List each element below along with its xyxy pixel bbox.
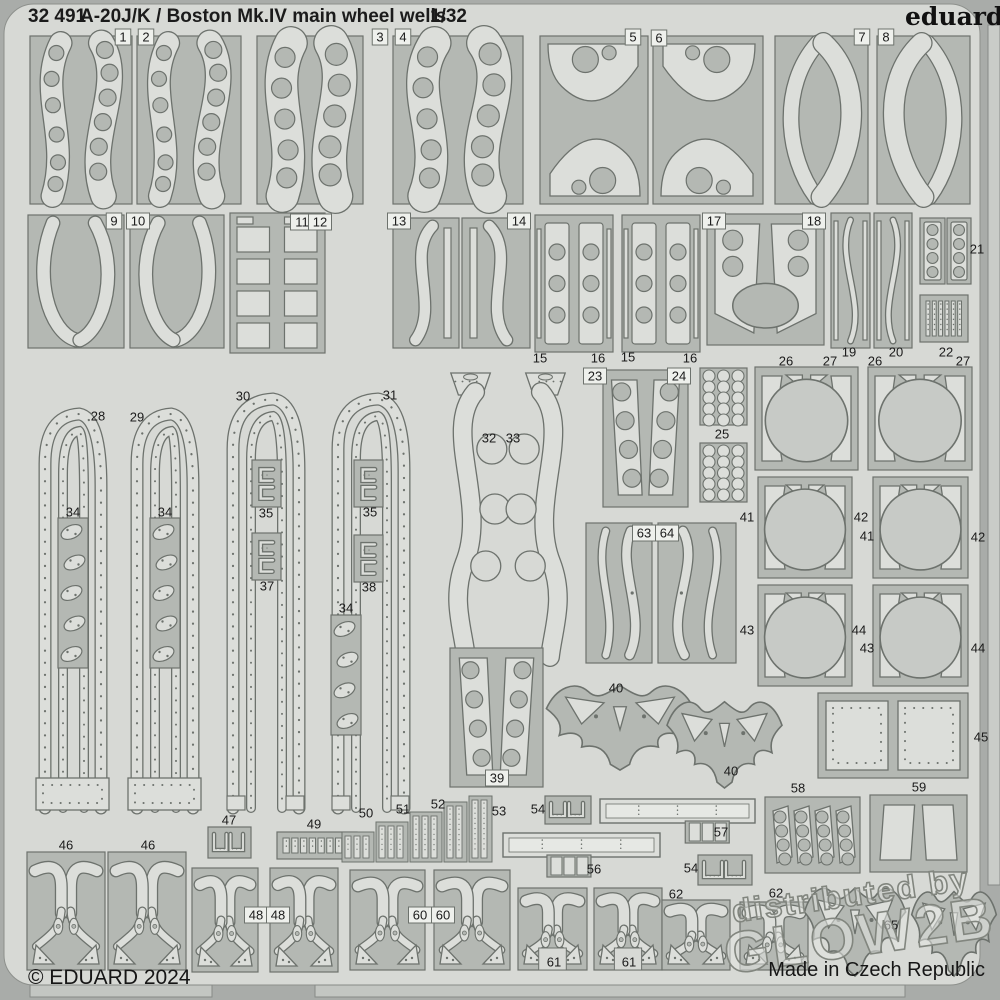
part-label: 47 [222,813,236,828]
svg-text:50: 50 [359,806,373,821]
part-label: 30 [236,389,250,404]
part-label: 16 [683,351,697,366]
part-label: 12 [309,214,332,230]
svg-text:1: 1 [119,30,126,45]
part-label: 45 [974,730,988,745]
part-label: 53 [492,804,506,819]
svg-text:40: 40 [609,681,623,696]
part-label: 61 [622,955,636,970]
panel-64 [658,523,736,663]
origin-text: Made in Czech Republic [768,959,985,981]
part-label: 16 [591,351,605,366]
panel-7 [775,36,868,204]
part-label: 42 [854,510,868,525]
part-label: 18 [803,213,826,229]
svg-text:3: 3 [376,30,383,45]
svg-text:34: 34 [158,505,172,520]
sheet-title: A-20J/K / Boston Mk.IV main wheel wells [80,6,446,27]
svg-text:30: 30 [236,389,250,404]
part-label: 4 [395,29,411,45]
svg-text:34: 34 [339,601,353,616]
part-label: 25 [715,427,729,442]
svg-text:45: 45 [974,730,988,745]
svg-text:27: 27 [956,354,970,369]
svg-text:22: 22 [939,345,953,360]
panel-15-16b [622,215,700,352]
svg-text:53: 53 [492,804,506,819]
part-label: 40 [609,681,623,696]
panel-2 [137,36,241,204]
svg-text:5: 5 [629,30,636,45]
part-label: 29 [130,410,144,425]
part-label: 42 [971,530,985,545]
adjacent-sheet-edge [988,25,1000,885]
part-label: 60 [432,907,455,923]
panel-58 [765,797,860,873]
part-label: 7 [854,29,870,45]
svg-text:17: 17 [707,214,721,229]
panel-46b [108,852,186,970]
svg-text:48: 48 [249,908,263,923]
panel-38 [354,535,383,582]
panel-41-42a [758,477,852,578]
eduard-logo: eduard [905,2,1000,31]
svg-text:13: 13 [392,214,406,229]
svg-text:4: 4 [399,30,406,45]
svg-text:52: 52 [431,797,445,812]
part-label: 54 [531,802,545,817]
part-label: 34 [158,505,172,520]
svg-text:48: 48 [271,908,285,923]
svg-text:61: 61 [547,955,561,970]
panel-13 [393,218,459,348]
part-label: 41 [860,529,874,544]
part-label: 35 [363,505,377,520]
panel-35b [354,460,383,507]
panel-39 [450,648,543,787]
svg-text:57: 57 [714,825,728,840]
part-label: 64 [656,525,679,541]
panel-15-16a [535,215,613,352]
svg-text:15: 15 [533,351,547,366]
part-label: 23 [584,368,607,384]
svg-text:44: 44 [971,641,985,656]
svg-text:7: 7 [858,30,865,45]
svg-text:62: 62 [669,887,683,902]
svg-text:59: 59 [912,780,926,795]
panel-19 [831,213,870,348]
svg-text:38: 38 [362,580,376,595]
svg-text:60: 60 [436,908,450,923]
part-label: 1 [115,29,131,45]
part-label: 60 [409,907,432,923]
svg-text:63: 63 [637,526,651,541]
svg-text:54: 54 [684,861,698,876]
svg-text:26: 26 [868,354,882,369]
part-label: 21 [970,242,984,257]
svg-text:29: 29 [130,410,144,425]
svg-text:16: 16 [683,351,697,366]
svg-text:14: 14 [512,214,526,229]
panel-9 [28,215,124,348]
svg-text:56: 56 [587,862,601,877]
svg-text:24: 24 [672,369,686,384]
part-label: 44 [971,641,985,656]
svg-text:19: 19 [842,345,856,360]
part-label: 38 [362,580,376,595]
panel-34c [331,615,361,735]
part-label: 59 [912,780,926,795]
panel-25a [700,368,747,426]
part-label: 34 [339,601,353,616]
panel-54b [698,855,752,885]
part-label: 10 [127,213,150,229]
panel-20 [874,213,912,348]
panel-3 [257,36,363,204]
part-label: 28 [91,409,105,424]
part-label: 9 [106,213,122,229]
fret-canvas: 1234567891011121314171821151615161920222… [0,0,1000,1000]
part-label: 62 [669,887,683,902]
svg-text:33: 33 [506,431,520,446]
part-label: 40 [724,764,738,779]
svg-text:41: 41 [860,529,874,544]
part-label: 19 [842,345,856,360]
part-label: 33 [506,431,520,446]
svg-text:47: 47 [222,813,236,828]
panel-23-24 [603,370,688,507]
svg-text:10: 10 [131,214,145,229]
svg-text:39: 39 [490,771,504,786]
part-label: 58 [791,781,805,796]
part-label: 27 [823,354,837,369]
panel-46a [27,852,105,970]
part-label: 20 [889,345,903,360]
svg-text:15: 15 [621,350,635,365]
part-label: 46 [59,838,73,853]
svg-text:51: 51 [396,802,410,817]
svg-text:26: 26 [779,354,793,369]
part-label: 2 [138,29,154,45]
panel-25b [700,443,747,502]
svg-text:43: 43 [740,623,754,638]
svg-text:42: 42 [854,510,868,525]
part-label: 26 [868,354,882,369]
part-label: 39 [486,770,509,786]
part-label: 26 [779,354,793,369]
part-label: 57 [714,825,728,840]
svg-text:35: 35 [259,506,273,521]
part-label: 48 [267,907,290,923]
part-label: 3 [372,29,388,45]
catalog-number: 32 491 [28,6,87,27]
svg-text:2: 2 [142,30,149,45]
svg-text:21: 21 [970,242,984,257]
part-label: 8 [878,29,894,45]
part-label: 32 [482,431,496,446]
svg-text:32: 32 [482,431,496,446]
part-label: 24 [668,368,691,384]
part-label: 63 [633,525,656,541]
part-label: 14 [508,213,531,229]
panel-22 [920,295,968,342]
svg-text:60: 60 [413,908,427,923]
part-label: 13 [388,213,411,229]
panel-43-44b [873,585,968,686]
svg-text:43: 43 [860,641,874,656]
part-label: 43 [740,623,754,638]
panel-59 [870,795,967,872]
svg-text:34: 34 [66,505,80,520]
panel-1 [30,36,132,204]
panel-21b [947,218,971,284]
panel-43-44a [758,585,852,686]
panel-34b [150,518,180,668]
svg-text:40: 40 [724,764,738,779]
svg-text:6: 6 [655,31,662,46]
svg-text:20: 20 [889,345,903,360]
svg-text:61: 61 [622,955,636,970]
panel-37 [252,533,281,580]
part-label: 51 [396,802,410,817]
svg-text:54: 54 [531,802,545,817]
svg-text:49: 49 [307,817,321,832]
svg-text:16: 16 [591,351,605,366]
scale-indicator: 1/32 [430,6,467,27]
svg-text:9: 9 [110,214,117,229]
part-label: 27 [956,354,970,369]
panel-17-18 [707,214,824,345]
panel-54a [545,796,591,824]
panel-10 [130,215,224,348]
panel-62a [662,900,730,970]
svg-text:44: 44 [852,623,866,638]
svg-text:46: 46 [59,838,73,853]
part-label: 31 [383,388,397,403]
part-label: 54 [684,861,698,876]
svg-text:42: 42 [971,530,985,545]
panel-41-42b [873,477,968,578]
svg-text:46: 46 [141,838,155,853]
part-label: 15 [533,351,547,366]
panel-21a [920,218,945,284]
part-label: 22 [939,345,953,360]
part-label: 6 [651,30,667,46]
svg-text:37: 37 [260,579,274,594]
panel-26-27b [868,367,972,470]
copyright-text: © EDUARD 2024 [28,966,191,989]
part-label: 50 [359,806,373,821]
svg-text:12: 12 [313,215,327,230]
panel-26-27a [755,367,858,470]
svg-text:8: 8 [882,30,889,45]
part-label: 35 [259,506,273,521]
panel-35a [252,460,281,507]
part-label: 49 [307,817,321,832]
svg-text:25: 25 [715,427,729,442]
part-label: 46 [141,838,155,853]
part-label: 44 [852,623,866,638]
svg-text:35: 35 [363,505,377,520]
panel-11-12 [230,213,325,353]
part-label: 5 [625,29,641,45]
part-label: 15 [621,350,635,365]
svg-text:23: 23 [588,369,602,384]
svg-text:31: 31 [383,388,397,403]
panel-4 [393,36,523,204]
svg-text:28: 28 [91,409,105,424]
panel-63 [586,523,652,663]
panel-34a [58,518,88,668]
sheet-bottom-tab [315,985,905,997]
part-label: 37 [260,579,274,594]
svg-text:27: 27 [823,354,837,369]
svg-text:18: 18 [807,214,821,229]
part-label: 52 [431,797,445,812]
panel-8 [877,36,970,204]
part-label: 48 [245,907,268,923]
panel-47 [208,827,251,858]
svg-text:64: 64 [660,526,674,541]
panel-6 [653,36,763,204]
part-label: 17 [703,213,726,229]
part-label: 43 [860,641,874,656]
svg-text:11: 11 [295,215,309,230]
panel-14 [462,218,530,348]
pe-fret-scan: 1234567891011121314171821151615161920222… [0,0,1000,1000]
part-label: 41 [740,510,754,525]
panel-45 [818,693,968,778]
part-label: 56 [587,862,601,877]
part-label: 61 [547,955,561,970]
svg-text:41: 41 [740,510,754,525]
part-label: 34 [66,505,80,520]
panel-5 [540,36,648,204]
svg-text:58: 58 [791,781,805,796]
